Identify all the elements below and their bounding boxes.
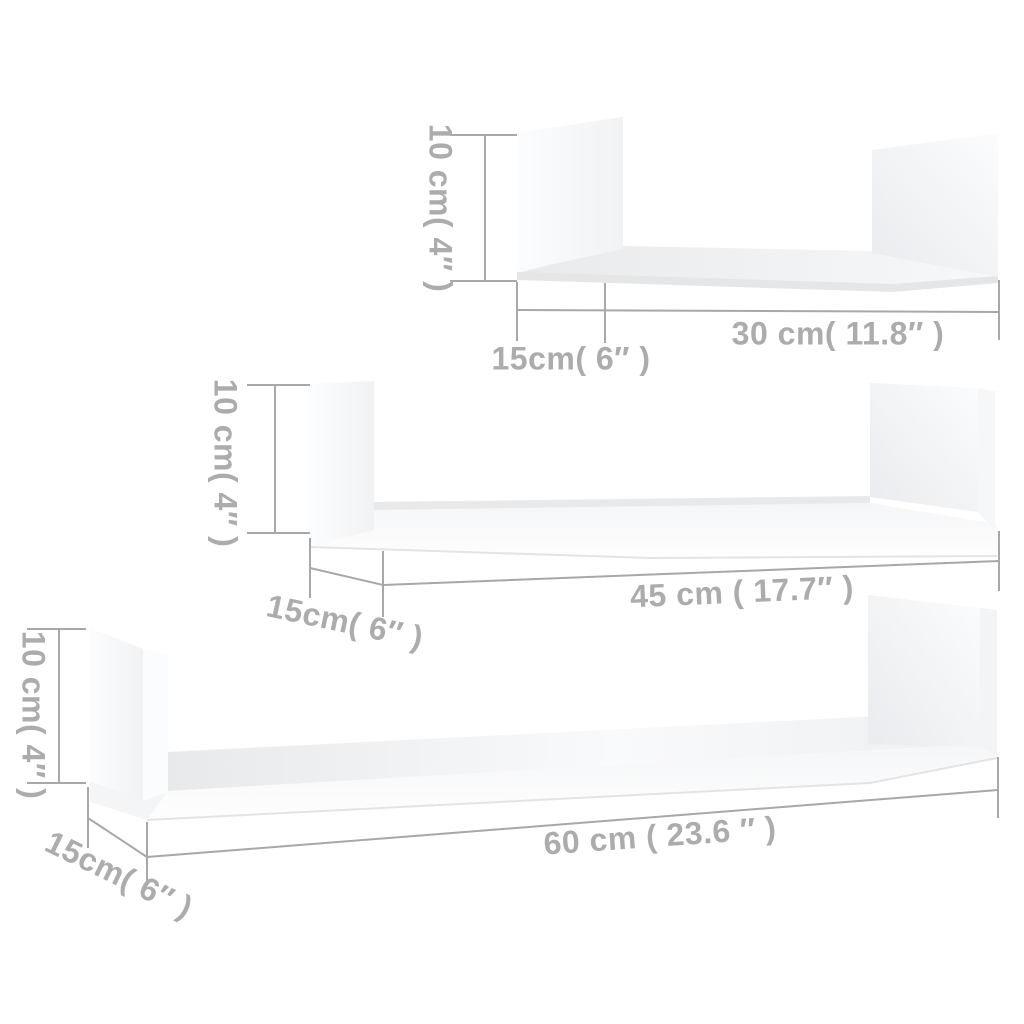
- shelf-30cm-render: [517, 117, 998, 292]
- depth-label-shelf-30cm: 15cm( 6″ ): [491, 341, 650, 378]
- shelf-60cm-left-panel-edge: [143, 649, 168, 801]
- width-label-shelf-30cm: 30 cm( 11.8″ ): [732, 316, 945, 353]
- shelf-45cm-left-panel: [308, 381, 374, 547]
- shelf-60cm-right-panel-edge: [980, 608, 997, 755]
- shelf-60cm-left-panel: [90, 628, 143, 801]
- height-label-shelf-30cm: 10 cm( 4″ ): [422, 124, 459, 292]
- height-label-shelf-60cm: 10 cm( 4″ ): [15, 631, 52, 799]
- dimension-height-shelf-30cm: [450, 135, 517, 281]
- shelf-60cm-render: [90, 595, 997, 820]
- height-label-shelf-45cm: 10 cm( 4″ ): [207, 379, 244, 547]
- shelf-30cm-right-panel: [872, 133, 998, 277]
- shelf-60cm-right-panel: [868, 595, 980, 747]
- shelf-30cm-left-panel: [517, 117, 623, 272]
- product-dimension-diagram: 10 cm( 4″ ) 15cm( 6″ ) 30 cm( 11.8″ ) 10…: [0, 0, 1024, 1024]
- shelf-45cm-right-panel-edge: [978, 388, 995, 530]
- shelf-45cm-right-panel: [870, 383, 978, 512]
- shelf-45cm-render: [308, 381, 997, 558]
- dimension-height-shelf-45cm: [247, 385, 310, 533]
